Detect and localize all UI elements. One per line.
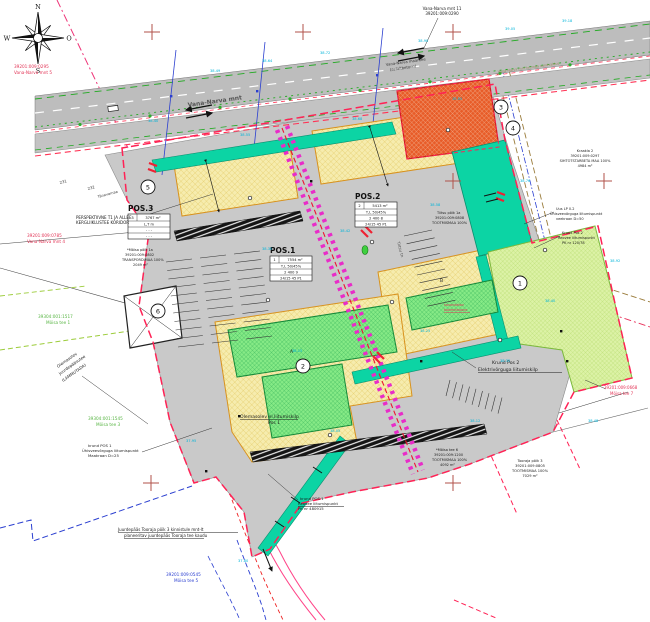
site-plan-page: N S W O POS.3 3 3767 m² L,T m - - - - - … xyxy=(0,0,650,622)
label-tooraja2: 39201:009:0805 xyxy=(515,464,545,468)
elevation-value: 38.05 xyxy=(330,429,340,433)
label-moisapoik1: *Mõisa põik 1a xyxy=(127,248,153,252)
pos2-row: 2 400 8 xyxy=(369,217,383,221)
pos1-title: POS.1 xyxy=(270,246,295,255)
pos1-area: 7554 m² xyxy=(287,258,303,262)
pos2-row: 24/15 45 P1 xyxy=(365,223,387,227)
label-pos2reovee3: PK nr 120/78 xyxy=(562,241,585,245)
registration-cross xyxy=(445,24,461,40)
label-moisapoik4: 2049 m² xyxy=(133,263,148,267)
label-tiitsu3: TOOTMISMAA 100% xyxy=(431,221,468,225)
position-circle-number: 6 xyxy=(156,307,160,315)
label-bld_red2: tootmishoone xyxy=(444,308,467,312)
elevation-value: 38.76 xyxy=(520,179,531,183)
utility-node xyxy=(170,95,172,97)
elevation-value: 38.40 xyxy=(148,119,159,123)
label-tanavamaa: Tänavamaa xyxy=(96,190,118,199)
elevation-value: 38.12 xyxy=(470,419,480,423)
label-letterB: B xyxy=(440,278,443,284)
tree-symbol xyxy=(362,246,368,255)
pos2-title: POS.2 xyxy=(355,192,380,201)
position-circle-number: 4 xyxy=(511,124,515,132)
label-uuslp2: Ühisveevõrguga liitumispunkt xyxy=(550,211,603,216)
registration-cross xyxy=(596,173,612,189)
elevation-value: 39.18 xyxy=(562,19,573,23)
label-vn4_name: Vana-Narva mnt 4 xyxy=(27,239,65,244)
label-kraakla2: 39201:009:0297 xyxy=(570,154,599,158)
label-vn11_code: 39201:009:0290 xyxy=(425,11,459,16)
elevation-value: 38.64 xyxy=(262,59,273,63)
pos3-title: POS.3 xyxy=(128,204,153,213)
label-vn5_code: 39201:009:0295 xyxy=(14,64,49,69)
label-moisapoik2: 39201:009:0802 xyxy=(125,253,154,257)
label-moisa5_name: Mõisa tee 5 xyxy=(174,578,199,583)
building-area-pos1-stem xyxy=(262,364,352,438)
elevation-value: 38.35 xyxy=(500,359,510,363)
label-pos2reovee1: Krund Pos 2 xyxy=(562,231,583,235)
pos3-num: 3 xyxy=(131,216,133,220)
cadastral-line xyxy=(0,231,148,244)
pos3-row: - - - xyxy=(146,229,153,233)
elevation-value: 38.58 xyxy=(430,203,441,207)
label-water3: Maakraan D=25 xyxy=(88,453,119,458)
label-vn5_name: Vana-Narva mnt 5 xyxy=(14,70,52,75)
pos1-row: 2 400 9 xyxy=(284,271,298,275)
thin-line xyxy=(553,408,648,432)
label-elkilp2: Pos 1 xyxy=(268,420,280,426)
label-moisa5_code: 39201:009:0545 xyxy=(166,572,201,577)
cadastral-line xyxy=(0,268,136,306)
label-access2: planeeritav juurdepääs Tooraja tee kaudu xyxy=(124,533,208,538)
green-boundary-line xyxy=(0,286,86,296)
compass-e: O xyxy=(66,35,71,43)
pos2-row: T,L 50/45% xyxy=(365,211,387,215)
elevation-value: 38.90 xyxy=(418,39,429,43)
elevation-value: 38.49 xyxy=(210,69,221,73)
label-moisa6_2: 39201:009:1200 xyxy=(434,453,463,457)
elevation-value: 38.92 xyxy=(610,259,620,263)
position-circle-number: 2 xyxy=(301,362,305,370)
label-moisa6_4: 4092 m² xyxy=(440,463,455,467)
label-uuslp3: veekraan D=50 xyxy=(556,217,584,221)
elevation-value: 38.42 xyxy=(340,229,350,233)
label-moisa7_code: 39201:009:0668 xyxy=(604,385,638,390)
label-vn4_code: 39201:009:0785 xyxy=(27,233,62,238)
label-moisa7_name: Mõisa tee 7 xyxy=(610,391,634,396)
label-tiitsu2: 39201:009:0808 xyxy=(435,216,464,220)
label-kraakla3: SIHTOTSTARBETA MAA 100% xyxy=(560,159,612,163)
elevation-value: 38.48 xyxy=(588,419,599,423)
pos2-area: 5413 m² xyxy=(372,204,388,208)
pos1-num: 1 xyxy=(273,258,275,262)
label-moisa1_name: Mõisa tee 1 xyxy=(46,320,71,325)
elevation-value: 38.85 xyxy=(452,97,462,101)
pos3-area: 3767 m² xyxy=(145,216,161,220)
red-dash-segment xyxy=(557,420,580,469)
label-bld_red1: kavandatav xyxy=(444,303,464,307)
elevation-value: 38.30 xyxy=(262,247,273,251)
position-circle-number: 1 xyxy=(518,279,522,287)
site-plan-drawing: N S W O POS.3 3 3767 m² L,T m - - - - - … xyxy=(0,0,650,622)
label-plot232: 232 xyxy=(87,184,96,191)
elevation-value: 38.68 xyxy=(352,117,363,121)
elevation-value: 37.80 xyxy=(238,559,249,563)
bus-stop xyxy=(108,105,119,111)
label-kraakla1: Kraakla 2 xyxy=(577,149,594,153)
pos1-row: 24/15 45 P1 xyxy=(280,277,302,281)
elevation-value: 38.25 xyxy=(420,329,430,333)
label-moisa6_1: *Mõisa tee 6 xyxy=(436,448,458,452)
label-moisa6_3: TOOTMISMAA 100% xyxy=(431,458,468,462)
label-moisa3_code: 39304:001:1545 xyxy=(88,416,123,421)
registration-cross xyxy=(143,475,159,491)
registration-cross xyxy=(445,475,461,491)
utility-node xyxy=(376,74,378,76)
registration-cross xyxy=(295,24,311,40)
label-kraakla4: 4984 m² xyxy=(578,164,593,168)
pos1-row: T,L 50/45% xyxy=(280,265,302,269)
label-pos2reovee2: Reovee liitumispunkt xyxy=(558,236,595,240)
label-plot231: 231 xyxy=(59,178,68,185)
label-moisa1_code: 39304:001:1517 xyxy=(38,314,73,319)
pos2-num: 2 xyxy=(358,204,360,208)
label-tooraja1: Tooraja põik 3 xyxy=(517,459,543,463)
compass-n: N xyxy=(35,3,41,11)
position-circle-number: 3 xyxy=(499,103,503,111)
elevation-value: 38.40 xyxy=(545,299,556,303)
red-dash-segment xyxy=(454,600,496,618)
label-tooraja3: TOOTMISMAA 100% xyxy=(511,469,549,473)
label-moisa3_name: Mõisa tee 3 xyxy=(96,422,121,427)
utility-node xyxy=(256,90,258,92)
elevation-value: 38.55 xyxy=(240,133,250,137)
registration-cross xyxy=(144,24,160,40)
pos3-row: - - - xyxy=(146,235,153,239)
label-sewer3: PK nr 480915 xyxy=(298,506,324,511)
label-uuslp1: Uus LP 0.2 xyxy=(556,207,574,211)
elevation-value: 37.95 xyxy=(186,439,196,443)
label-moisapoik3: TRANSPORDIMAA 100% xyxy=(121,258,164,262)
label-persp2: KERGLIIKLUSTEE KORIDOR xyxy=(76,220,129,225)
label-access1: Juurdepääs Tooraja põik 3 kinnistule mnt… xyxy=(117,527,204,532)
label-tooraja4: 7029 m² xyxy=(522,474,538,478)
position-circle-number: 5 xyxy=(146,183,150,191)
blue-dashed-line xyxy=(208,556,240,620)
compass-w: W xyxy=(4,35,11,43)
elevation-value: 38.72 xyxy=(320,51,330,55)
elevation-value: 39.05 xyxy=(505,27,515,31)
elevation-value: 38.15 xyxy=(292,349,302,353)
pos3-row: L,T m xyxy=(144,223,154,227)
label-tiitsu1: Tiitsu põik 1a xyxy=(436,211,460,215)
